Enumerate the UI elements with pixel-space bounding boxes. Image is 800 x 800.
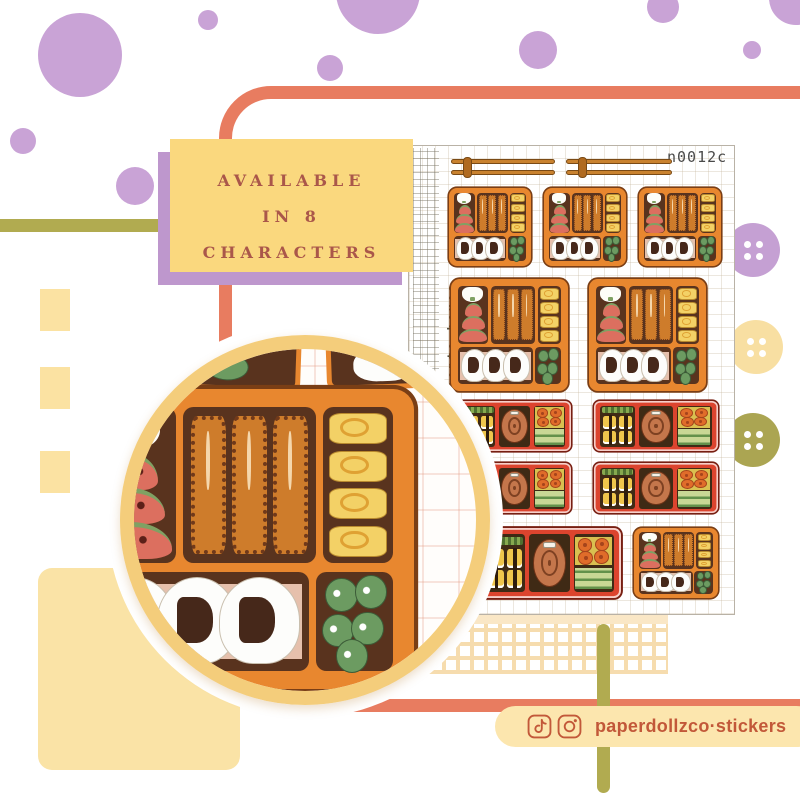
cutlet-highlight — [498, 294, 500, 317]
watermelon-slice — [597, 329, 625, 343]
nori-band — [624, 477, 627, 507]
sheet-code: n0012c — [667, 148, 727, 166]
tamago-roll — [540, 316, 559, 328]
fried-cutlet — [488, 195, 496, 231]
bento-cell — [639, 468, 674, 509]
flower-karaage — [575, 537, 612, 566]
tamago-swirl — [701, 553, 707, 556]
flower-center — [554, 420, 557, 423]
fried-cutlet — [659, 289, 671, 340]
onigiri — [485, 237, 504, 260]
swirl-roll — [533, 539, 567, 587]
flower-center — [599, 555, 603, 559]
tamago-roll — [701, 223, 714, 231]
tamago-swirl — [682, 304, 691, 310]
cutlet-highlight — [482, 199, 483, 214]
bento-cell — [596, 347, 671, 384]
tamago-roll — [698, 560, 712, 567]
tamago-roll — [701, 194, 714, 202]
bento-cell — [605, 193, 621, 234]
tamago-roll — [606, 204, 619, 212]
broccoli-floret — [517, 236, 525, 245]
cat-face — [457, 193, 471, 204]
tamago-roll — [701, 214, 714, 222]
onigiri-nori — [490, 242, 498, 253]
flower-karaage — [678, 407, 710, 428]
tamago-swirl — [609, 196, 615, 200]
onigiri — [675, 237, 694, 260]
button-hole — [747, 350, 754, 357]
cat-bow — [462, 201, 465, 204]
tamago-swirl — [514, 225, 520, 229]
cat-bow — [557, 201, 560, 204]
tamago-roll — [606, 214, 619, 222]
flower-center — [686, 483, 689, 486]
button-hole — [747, 338, 754, 345]
tamago-swirl — [609, 206, 615, 210]
tamago-swirl — [704, 206, 710, 210]
bento-cell — [454, 236, 506, 262]
broccoli-floret — [612, 236, 620, 245]
fried-cutlet — [521, 289, 533, 340]
tamago-roll — [606, 194, 619, 202]
fried-cutlet — [631, 289, 643, 340]
tamago-swirl — [514, 216, 520, 220]
bento-cell — [629, 286, 673, 344]
broccoli-floret — [703, 253, 711, 262]
tamago-roll — [606, 223, 619, 231]
cutlet-highlight — [636, 294, 638, 317]
green-beans — [575, 568, 612, 590]
bento-sticker-orange — [449, 188, 531, 266]
cutlet-highlight — [492, 199, 493, 214]
watermelon-slice — [459, 329, 487, 343]
social-banner: paperdollzco·stickers — [495, 706, 800, 747]
tamago-swirl — [704, 216, 710, 220]
polka-dot — [317, 55, 343, 81]
flower-center — [685, 412, 688, 415]
cutlet-highlight — [650, 294, 652, 317]
yellow-square — [40, 289, 70, 331]
tamago-swirl — [514, 196, 520, 200]
watermelon-slice — [603, 303, 621, 317]
tamago-roll — [511, 194, 524, 202]
onigiri-nori — [606, 357, 617, 373]
flower-center — [699, 482, 702, 485]
bento-cell — [600, 468, 635, 509]
bento-cell — [600, 406, 635, 447]
cutlet-highlight — [664, 294, 666, 317]
chopsticks-sticker — [451, 157, 555, 179]
tamago-roll — [678, 330, 697, 342]
broccoli-floret — [680, 372, 691, 385]
polka-dot — [38, 13, 122, 97]
bento-cell — [458, 347, 533, 384]
flower-center — [600, 542, 604, 546]
fried-cutlet — [583, 195, 591, 231]
cutlet-highlight — [512, 294, 514, 317]
bento-cell — [499, 468, 531, 509]
polka-dot — [336, 0, 420, 34]
bento-cell — [458, 286, 488, 344]
tamago-swirl — [544, 332, 553, 338]
flower-karaage — [535, 469, 564, 490]
flower-center — [541, 412, 544, 415]
broccoli-floret — [513, 253, 521, 262]
banner-line-3: CHARACTERS — [170, 235, 413, 271]
tamago-swirl — [514, 206, 520, 210]
flower — [594, 550, 609, 564]
onigiri-nori — [646, 577, 654, 587]
flower-center — [700, 473, 703, 476]
cat-bow — [470, 297, 475, 301]
broccoli-floret — [608, 253, 616, 262]
tamago-swirl — [701, 535, 707, 538]
bento-sticker-orange — [451, 279, 568, 391]
green-beans — [535, 491, 564, 507]
cat-face — [642, 533, 657, 542]
flower — [578, 538, 593, 552]
roll-label — [510, 411, 520, 415]
broccoli-floret — [707, 236, 715, 245]
tamago-roll — [511, 214, 524, 222]
onigiri-nori — [476, 242, 484, 253]
roll-center — [654, 424, 657, 428]
bento-cell — [491, 286, 535, 344]
button-hole — [744, 443, 751, 450]
chopstick-rest — [578, 157, 587, 178]
onigiri-nori — [676, 577, 684, 587]
green-beans — [678, 429, 710, 445]
cutlet-highlight — [678, 538, 679, 552]
cutlet-highlight — [688, 538, 689, 552]
green-beans — [535, 429, 564, 445]
polka-dot — [116, 167, 154, 205]
cutlet-highlight — [526, 294, 528, 317]
yellow-square — [40, 451, 70, 493]
bento-cell — [529, 534, 569, 591]
bento-cell — [454, 193, 475, 234]
onigiri-nori — [556, 242, 564, 253]
chopsticks-sticker — [566, 157, 672, 179]
flower — [578, 551, 593, 565]
bento-cell — [596, 286, 626, 344]
button-hole — [756, 241, 763, 248]
flower — [681, 417, 694, 427]
swirl-roll — [641, 471, 670, 505]
flower-center — [686, 421, 689, 424]
polka-dot — [10, 128, 36, 154]
tamago-swirl — [682, 318, 691, 324]
bento-sticker-orange — [639, 188, 721, 266]
polka-dot — [743, 41, 761, 59]
onigiri-nori — [571, 242, 579, 253]
bento-cell — [639, 406, 674, 447]
bento-cell — [698, 236, 716, 262]
polka-dot — [769, 0, 800, 25]
button-hole — [744, 253, 751, 260]
flower — [694, 479, 707, 489]
flower-center — [584, 556, 588, 560]
cutlet-highlight — [668, 538, 669, 552]
cutlet-highlight — [672, 199, 673, 214]
onigiri-nori — [666, 242, 674, 253]
bento-cell — [644, 236, 696, 262]
magnifier-ring — [120, 335, 490, 705]
onigiri-nori — [651, 242, 659, 253]
cutlet-highlight — [501, 199, 502, 214]
banner-line-2: IN 8 — [170, 199, 413, 235]
flower — [681, 479, 694, 489]
fried-cutlet — [688, 195, 696, 231]
onigiri-nori — [680, 242, 688, 253]
tamago-roll — [540, 302, 559, 314]
watermelon-slice — [455, 223, 475, 233]
bento-cell — [510, 193, 526, 234]
flower — [537, 417, 549, 427]
polka-dot — [647, 0, 679, 23]
roll-label — [651, 473, 662, 477]
greens-garnish — [602, 407, 633, 413]
button-hole — [759, 338, 766, 345]
yellow-square — [40, 367, 70, 409]
tamago-roll — [701, 204, 714, 212]
bento-cell — [538, 286, 561, 344]
flower — [550, 417, 562, 427]
roll-center — [513, 424, 516, 428]
product-image-canvas: bento boxes n0012c AVAILABLE IN 8 CHARAC… — [0, 0, 800, 800]
bento-cell — [508, 236, 526, 262]
onigiri — [671, 572, 690, 592]
fried-cutlet — [669, 195, 677, 231]
onigiri-nori — [661, 577, 669, 587]
bento-cell — [696, 532, 713, 568]
flower — [694, 417, 707, 427]
bento-sticker-orange — [634, 528, 718, 598]
bento-sticker-orange — [544, 188, 626, 266]
cat-face — [552, 193, 566, 204]
tamago-roll — [678, 302, 697, 314]
roll-center — [654, 486, 657, 490]
availability-banner: AVAILABLE IN 8 CHARACTERS — [170, 139, 413, 272]
button-hole — [756, 443, 763, 450]
fried-cutlet — [507, 289, 519, 340]
tamago-roll — [540, 330, 559, 342]
tiktok-icon — [527, 714, 552, 739]
bento-cell — [499, 406, 531, 447]
fried-cutlet — [684, 534, 692, 566]
button-hole — [756, 253, 763, 260]
fried-cutlet — [479, 195, 487, 231]
bento-cell — [549, 236, 601, 262]
tamago-roll — [511, 223, 524, 231]
tamago-roll — [698, 551, 712, 558]
tamago-swirl — [701, 544, 707, 547]
onigiri-nori — [489, 357, 500, 373]
bento-sticker-orange — [589, 279, 706, 391]
bento-cell — [694, 571, 712, 594]
flower-center — [699, 420, 702, 423]
swirl-roll — [501, 471, 528, 505]
greens-garnish — [602, 469, 633, 475]
fried-cutlet — [574, 195, 582, 231]
bento-cell — [603, 236, 621, 262]
fried-cutlet — [645, 289, 657, 340]
nori-band — [609, 477, 612, 507]
instagram-icon — [557, 714, 582, 739]
onigiri-nori — [468, 357, 479, 373]
bento-cell — [535, 347, 561, 384]
green-beans — [678, 491, 710, 507]
bento-cell — [639, 571, 693, 594]
tamago-swirl — [544, 290, 553, 296]
broccoli-floret — [704, 571, 712, 579]
tamago-swirl — [544, 304, 553, 310]
watermelon-slice — [645, 223, 665, 233]
cutlet-highlight — [587, 199, 588, 214]
bento-sticker-red — [594, 463, 718, 513]
bento-cell — [572, 193, 603, 234]
tamago-roll — [698, 542, 712, 549]
tamago-roll — [678, 316, 697, 328]
onigiri-nori — [510, 357, 521, 373]
flower-center — [700, 411, 703, 414]
bento-cell — [667, 193, 698, 234]
tamago-roll — [698, 534, 712, 541]
button-hole — [744, 431, 751, 438]
chopstick-rest — [463, 157, 472, 178]
onigiri-nori — [585, 242, 593, 253]
tamago-swirl — [544, 318, 553, 324]
onigiri — [580, 237, 599, 260]
bento-cell — [534, 468, 566, 509]
tamago-swirl — [682, 290, 691, 296]
watermelon-slice — [600, 316, 623, 330]
fried-cutlet — [678, 195, 686, 231]
onigiri-nori — [461, 242, 469, 253]
tamago-roll — [678, 288, 697, 300]
broccoli-floret — [686, 348, 697, 361]
roll-center — [548, 560, 552, 566]
bento-sticker-red — [594, 401, 718, 451]
bento-cell — [534, 406, 566, 447]
onigiri — [641, 349, 668, 382]
roll-label — [651, 411, 662, 415]
bento-cell — [663, 532, 695, 568]
swirl-roll — [501, 409, 528, 443]
polka-dot — [198, 10, 218, 30]
tamago-swirl — [682, 332, 691, 338]
broccoli-floret — [542, 372, 553, 385]
tamago-swirl — [609, 225, 615, 229]
watermelon-slice — [465, 303, 483, 317]
cat-face — [647, 193, 661, 204]
nori-band — [624, 415, 627, 445]
button-hole — [756, 431, 763, 438]
fried-cutlet — [493, 289, 505, 340]
tamago-roll — [511, 204, 524, 212]
bento-cell — [673, 347, 699, 384]
bento-cell — [677, 406, 712, 447]
onigiri — [503, 349, 530, 382]
bento-cell — [676, 286, 699, 344]
polka-dot — [519, 31, 557, 69]
swirl-roll — [641, 409, 670, 443]
cutlet-highlight — [577, 199, 578, 214]
tamago-swirl — [609, 216, 615, 220]
cat-face — [462, 287, 483, 302]
banner-line-1: AVAILABLE — [170, 163, 413, 199]
roll-center — [513, 486, 516, 490]
fried-cutlet — [674, 534, 682, 566]
nori-band — [513, 548, 517, 589]
fried-cutlet — [593, 195, 601, 231]
nori-band — [609, 415, 612, 445]
bento-cell — [549, 193, 570, 234]
roll-label — [510, 473, 520, 477]
cat-face — [600, 287, 621, 302]
flower — [537, 479, 549, 489]
bento-cell — [677, 468, 712, 509]
fried-cutlet — [664, 534, 672, 566]
flower-center — [554, 411, 557, 414]
button-hole — [744, 241, 751, 248]
flower-center — [583, 543, 587, 547]
tamago-swirl — [704, 196, 710, 200]
bento-cell — [477, 193, 508, 234]
flower-karaage — [678, 469, 710, 490]
roll-label — [543, 542, 556, 548]
cat-bow — [648, 539, 652, 541]
flower-karaage — [535, 407, 564, 428]
bento-cell — [574, 534, 614, 591]
fried-cutlet — [498, 195, 506, 231]
bento-cell — [700, 193, 716, 234]
tamago-swirl — [704, 225, 710, 229]
cat-bow — [608, 297, 613, 301]
flower-center — [541, 474, 544, 477]
broccoli-floret — [548, 348, 559, 361]
flower-center — [685, 474, 688, 477]
tamago-roll — [540, 288, 559, 300]
onigiri-nori — [627, 357, 638, 373]
bento-cell — [639, 532, 661, 568]
flower-center — [542, 421, 545, 424]
watermelon-slice — [550, 223, 570, 233]
button-embellishment — [729, 320, 783, 374]
shop-handle: paperdollzco·stickers — [595, 716, 786, 737]
tamago-swirl — [701, 562, 707, 565]
onigiri-nori — [648, 357, 659, 373]
flower-center — [554, 473, 557, 476]
cutlet-highlight — [596, 199, 597, 214]
broccoli-floret — [699, 586, 707, 594]
flower-center — [554, 482, 557, 485]
cat-bow — [652, 201, 655, 204]
cutlet-highlight — [682, 199, 683, 214]
cutlet-highlight — [691, 199, 692, 214]
bento-cell — [644, 193, 665, 234]
watermelon-slice — [462, 316, 485, 330]
flower — [550, 479, 562, 489]
button-hole — [759, 350, 766, 357]
watermelon-slice — [640, 559, 660, 568]
flower-center — [542, 483, 545, 486]
